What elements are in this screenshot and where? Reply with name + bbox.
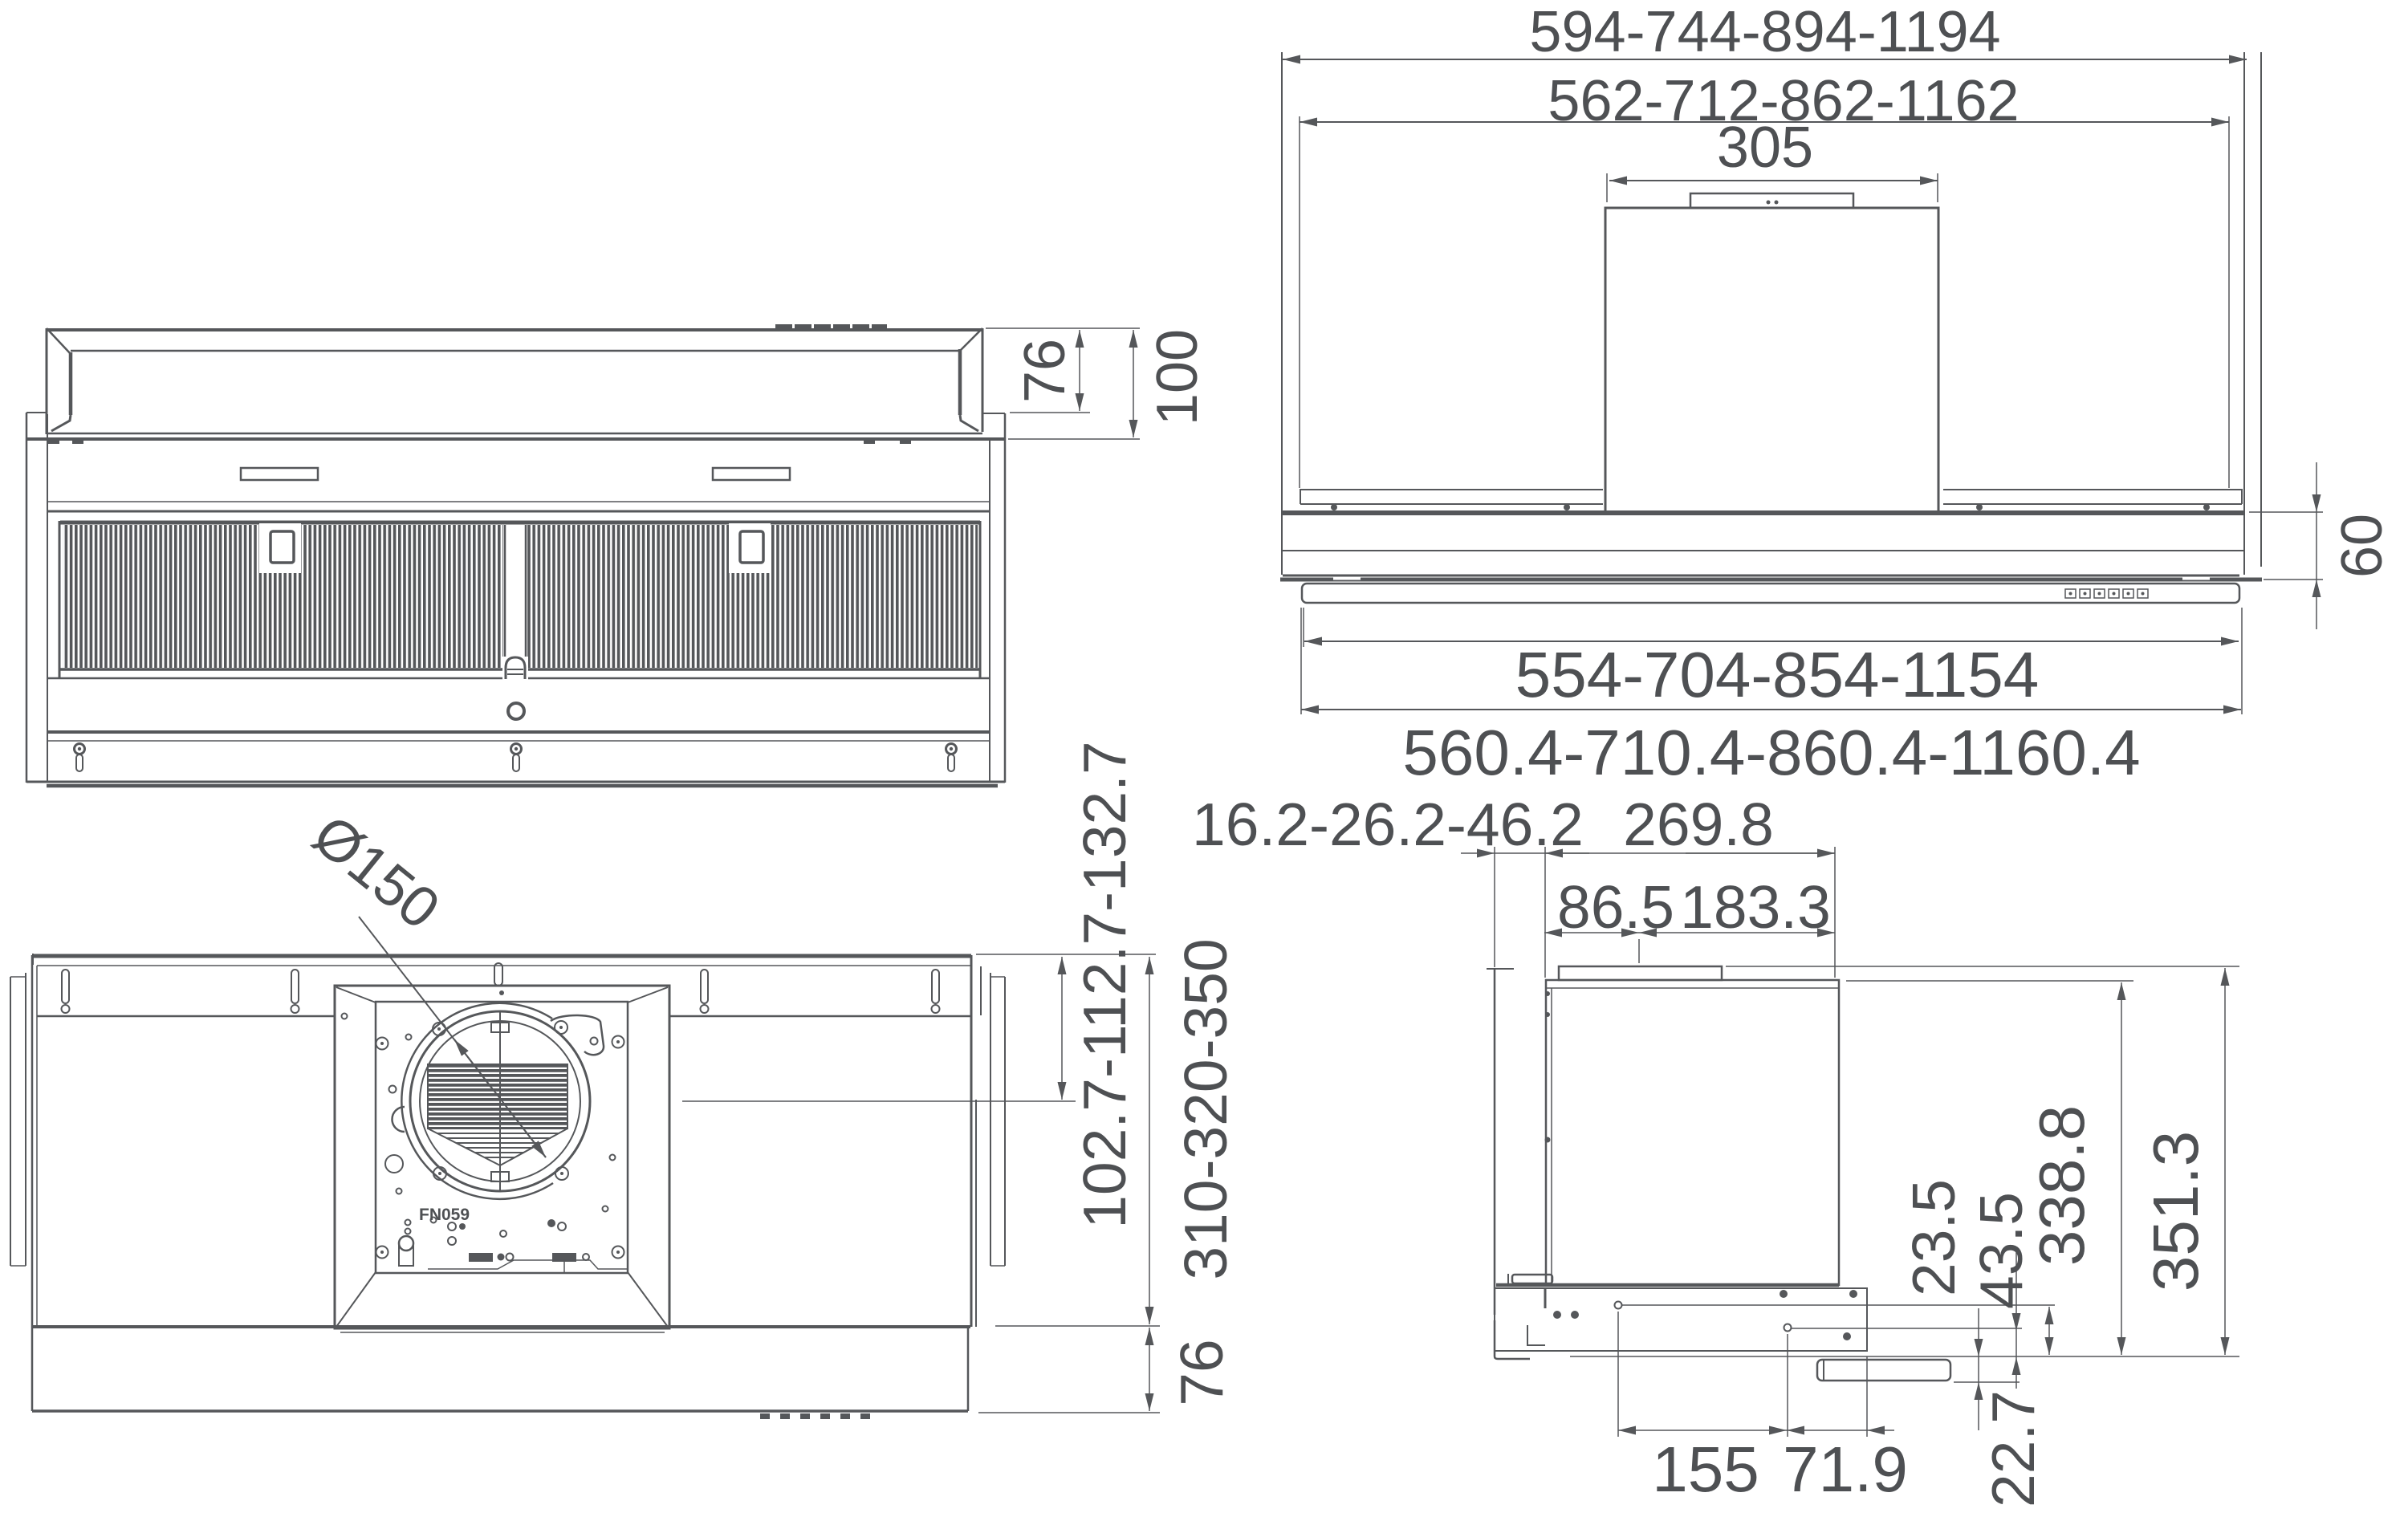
svg-text:100: 100 [1145, 329, 1210, 425]
svg-text:338.8: 338.8 [2026, 1105, 2097, 1266]
svg-text:60: 60 [2330, 514, 2394, 578]
svg-text:22.7: 22.7 [1979, 1390, 2047, 1507]
svg-text:23.5: 23.5 [1900, 1179, 1967, 1296]
svg-text:305: 305 [1717, 116, 1813, 180]
svg-text:43.5: 43.5 [1967, 1192, 2035, 1309]
svg-text:310-320-350: 310-320-350 [1172, 938, 1239, 1279]
svg-text:71.9: 71.9 [1783, 1434, 1908, 1505]
svg-text:76: 76 [1013, 339, 1077, 403]
svg-text:269.8: 269.8 [1623, 791, 1774, 858]
svg-text:102.7-112.7-132.7: 102.7-112.7-132.7 [1071, 741, 1138, 1228]
svg-text:594-744-894-1194: 594-744-894-1194 [1529, 0, 2000, 64]
svg-text:16.2-26.2-46.2: 16.2-26.2-46.2 [1192, 791, 1584, 858]
svg-text:560.4-710.4-860.4-1160.4: 560.4-710.4-860.4-1160.4 [1402, 717, 2140, 788]
svg-text:FN059: FN059 [419, 1206, 470, 1224]
svg-text:76: 76 [1168, 1339, 1235, 1405]
svg-text:351.3: 351.3 [2140, 1131, 2211, 1291]
svg-text:183.3: 183.3 [1680, 873, 1831, 941]
svg-text:155: 155 [1652, 1434, 1759, 1505]
svg-text:554-704-854-1154: 554-704-854-1154 [1515, 639, 2039, 710]
svg-text:86.5: 86.5 [1557, 873, 1674, 941]
